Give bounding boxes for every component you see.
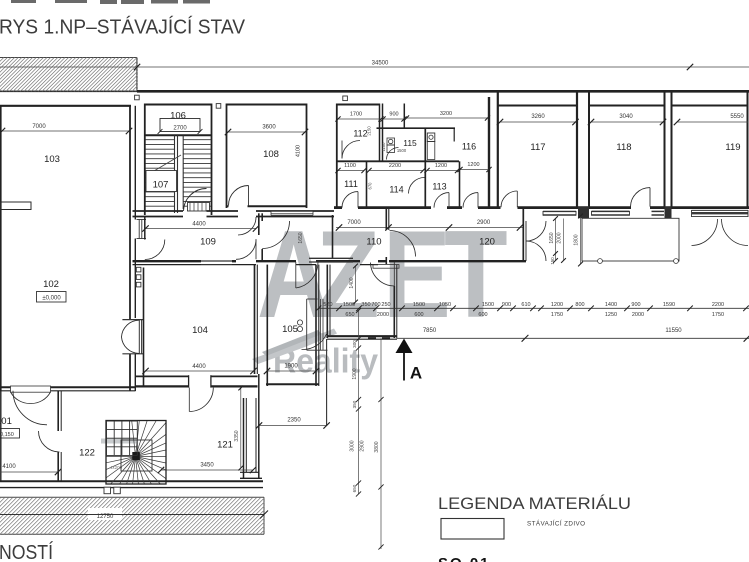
svg-text:2000: 2000 xyxy=(557,232,563,243)
svg-text:103: 103 xyxy=(44,154,60,165)
svg-text:3800: 3800 xyxy=(374,441,380,452)
svg-text:2200: 2200 xyxy=(712,302,724,308)
svg-text:E: E xyxy=(383,205,451,344)
svg-text:111: 111 xyxy=(344,179,358,189)
svg-text:900: 900 xyxy=(631,302,640,308)
svg-text:1250: 1250 xyxy=(605,312,617,318)
svg-text:650: 650 xyxy=(345,312,354,318)
svg-text:11550: 11550 xyxy=(665,328,682,334)
svg-text:1200: 1200 xyxy=(435,163,447,169)
svg-text:2150: 2150 xyxy=(367,126,372,136)
svg-text:1900: 1900 xyxy=(352,368,358,379)
svg-text:3040: 3040 xyxy=(619,114,633,120)
svg-text:3450: 3450 xyxy=(200,463,214,469)
svg-text:101: 101 xyxy=(0,416,12,427)
svg-text:RYS 1.NP–STÁVAJÍCÍ STAV: RYS 1.NP–STÁVAJÍCÍ STAV xyxy=(0,16,245,39)
svg-text:T: T xyxy=(444,205,508,344)
svg-text:1650: 1650 xyxy=(298,232,304,243)
svg-text:2700: 2700 xyxy=(173,126,187,132)
svg-text:700: 700 xyxy=(371,302,380,308)
svg-text:107: 107 xyxy=(153,180,169,191)
svg-text:1590: 1590 xyxy=(663,302,675,308)
svg-text:106: 106 xyxy=(170,111,186,122)
svg-text:7000: 7000 xyxy=(347,220,361,226)
svg-text:-0,150: -0,150 xyxy=(0,432,14,438)
svg-text:300: 300 xyxy=(352,340,357,348)
svg-text:350: 350 xyxy=(361,302,370,308)
svg-text:1100: 1100 xyxy=(381,142,386,152)
svg-text:114: 114 xyxy=(389,185,403,195)
svg-text:150: 150 xyxy=(550,257,555,265)
svg-text:122: 122 xyxy=(79,448,95,459)
svg-text:3000: 3000 xyxy=(350,440,356,451)
svg-text:117: 117 xyxy=(530,142,545,153)
svg-text:1750: 1750 xyxy=(712,312,724,318)
svg-text:1650: 1650 xyxy=(549,232,555,243)
svg-text:7850: 7850 xyxy=(423,328,437,334)
svg-text:NOSTÍ: NOSTÍ xyxy=(0,541,53,562)
svg-text:4400: 4400 xyxy=(192,364,206,370)
svg-text:121: 121 xyxy=(217,440,233,451)
svg-text:610: 610 xyxy=(521,302,530,308)
svg-text:Z: Z xyxy=(316,205,380,344)
svg-text:2350: 2350 xyxy=(287,418,301,424)
svg-text:1500: 1500 xyxy=(397,148,407,153)
svg-text:5550: 5550 xyxy=(730,114,744,120)
svg-text:104: 104 xyxy=(192,325,208,336)
svg-text:LEGENDA MATERIÁLU: LEGENDA MATERIÁLU xyxy=(438,494,631,513)
svg-text:A: A xyxy=(410,364,422,383)
svg-text:1400: 1400 xyxy=(349,277,355,288)
svg-text:109: 109 xyxy=(200,237,216,248)
svg-text:4x200: 4x200 xyxy=(110,465,123,470)
svg-text:2900: 2900 xyxy=(477,220,491,226)
svg-text:102: 102 xyxy=(43,279,59,290)
svg-text:12750: 12750 xyxy=(97,514,114,520)
svg-text:108: 108 xyxy=(263,149,279,160)
svg-text:1750: 1750 xyxy=(551,312,563,318)
svg-text:250: 250 xyxy=(381,302,390,308)
svg-text:1400: 1400 xyxy=(605,302,617,308)
svg-text:1500: 1500 xyxy=(413,302,425,308)
svg-text:2200: 2200 xyxy=(389,163,401,169)
svg-text:2000: 2000 xyxy=(632,312,644,318)
svg-text:800: 800 xyxy=(575,302,584,308)
svg-text:1050: 1050 xyxy=(439,302,451,308)
svg-text:2900: 2900 xyxy=(360,440,366,451)
svg-text:1700: 1700 xyxy=(350,112,362,118)
svg-text:650: 650 xyxy=(352,484,357,492)
svg-text:600: 600 xyxy=(478,312,487,318)
svg-text:1200: 1200 xyxy=(467,162,479,168)
svg-text:4100: 4100 xyxy=(2,464,16,470)
svg-text:1500: 1500 xyxy=(343,302,355,308)
svg-text:670: 670 xyxy=(368,182,373,190)
svg-text:600: 600 xyxy=(414,312,423,318)
svg-text:105: 105 xyxy=(282,324,298,335)
svg-text:34500: 34500 xyxy=(372,61,389,67)
svg-text:350: 350 xyxy=(352,400,357,408)
svg-text:1500: 1500 xyxy=(482,302,494,308)
svg-text:±0,000: ±0,000 xyxy=(42,296,61,302)
svg-text:119: 119 xyxy=(725,142,740,153)
svg-text:900: 900 xyxy=(389,112,398,118)
svg-text:900: 900 xyxy=(502,302,511,308)
svg-text:110: 110 xyxy=(366,237,381,248)
svg-text:1900: 1900 xyxy=(284,364,298,370)
svg-text:4400: 4400 xyxy=(192,222,206,228)
svg-text:3350: 3350 xyxy=(234,430,240,441)
svg-text:116: 116 xyxy=(462,142,476,152)
svg-text:118: 118 xyxy=(616,142,631,153)
svg-text:3600: 3600 xyxy=(262,125,276,131)
svg-text:3200: 3200 xyxy=(440,111,452,117)
svg-text:1100: 1100 xyxy=(344,163,356,169)
svg-text:520: 520 xyxy=(323,302,332,308)
svg-text:1200: 1200 xyxy=(551,302,563,308)
svg-text:120: 120 xyxy=(479,237,495,248)
svg-text:115: 115 xyxy=(403,138,417,148)
svg-text:SO 01: SO 01 xyxy=(438,555,491,562)
svg-text:7000: 7000 xyxy=(32,124,46,130)
svg-text:1800: 1800 xyxy=(574,234,580,245)
svg-text:STÁVAJÍCÍ ZDIVO: STÁVAJÍCÍ ZDIVO xyxy=(527,519,585,528)
svg-text:2000: 2000 xyxy=(377,312,389,318)
svg-text:3260: 3260 xyxy=(531,114,545,120)
svg-text:113: 113 xyxy=(432,182,446,192)
svg-text:4100: 4100 xyxy=(296,145,302,157)
